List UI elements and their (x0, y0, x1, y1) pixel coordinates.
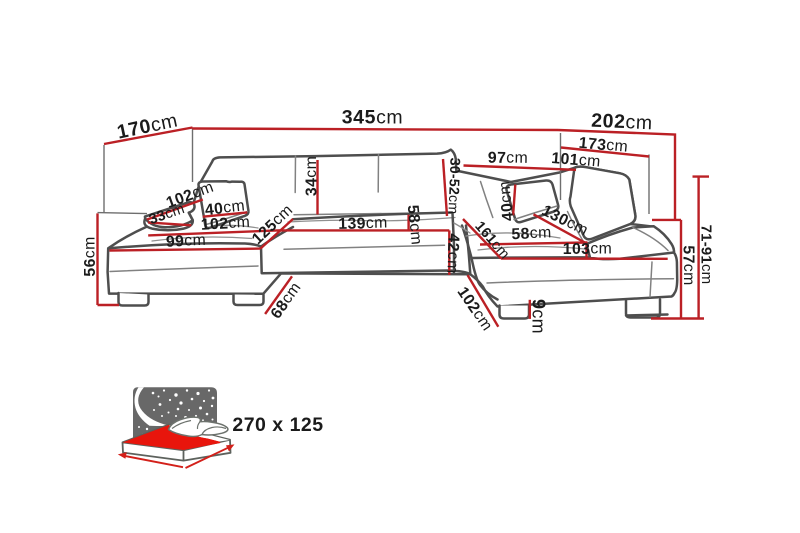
svg-text:71-91cm: 71-91cm (698, 225, 715, 285)
svg-text:139cm: 139cm (338, 215, 388, 233)
svg-text:97cm: 97cm (488, 149, 529, 167)
svg-text:345cm: 345cm (342, 107, 404, 129)
svg-text:102cm: 102cm (200, 214, 250, 234)
svg-text:58cm: 58cm (404, 204, 424, 246)
svg-text:270 x 125: 270 x 125 (232, 414, 323, 436)
svg-text:40cm: 40cm (496, 180, 516, 222)
svg-text:34cm: 34cm (303, 156, 320, 196)
svg-text:58cm: 58cm (511, 224, 552, 242)
svg-text:99cm: 99cm (166, 232, 207, 250)
svg-text:9cm: 9cm (529, 299, 549, 334)
svg-text:103cm: 103cm (563, 241, 612, 258)
svg-text:57cm: 57cm (680, 245, 697, 285)
svg-text:202cm: 202cm (591, 110, 653, 135)
svg-text:30-52cm: 30-52cm (445, 157, 463, 214)
svg-text:42cm: 42cm (443, 233, 462, 274)
svg-text:56cm: 56cm (82, 236, 99, 276)
